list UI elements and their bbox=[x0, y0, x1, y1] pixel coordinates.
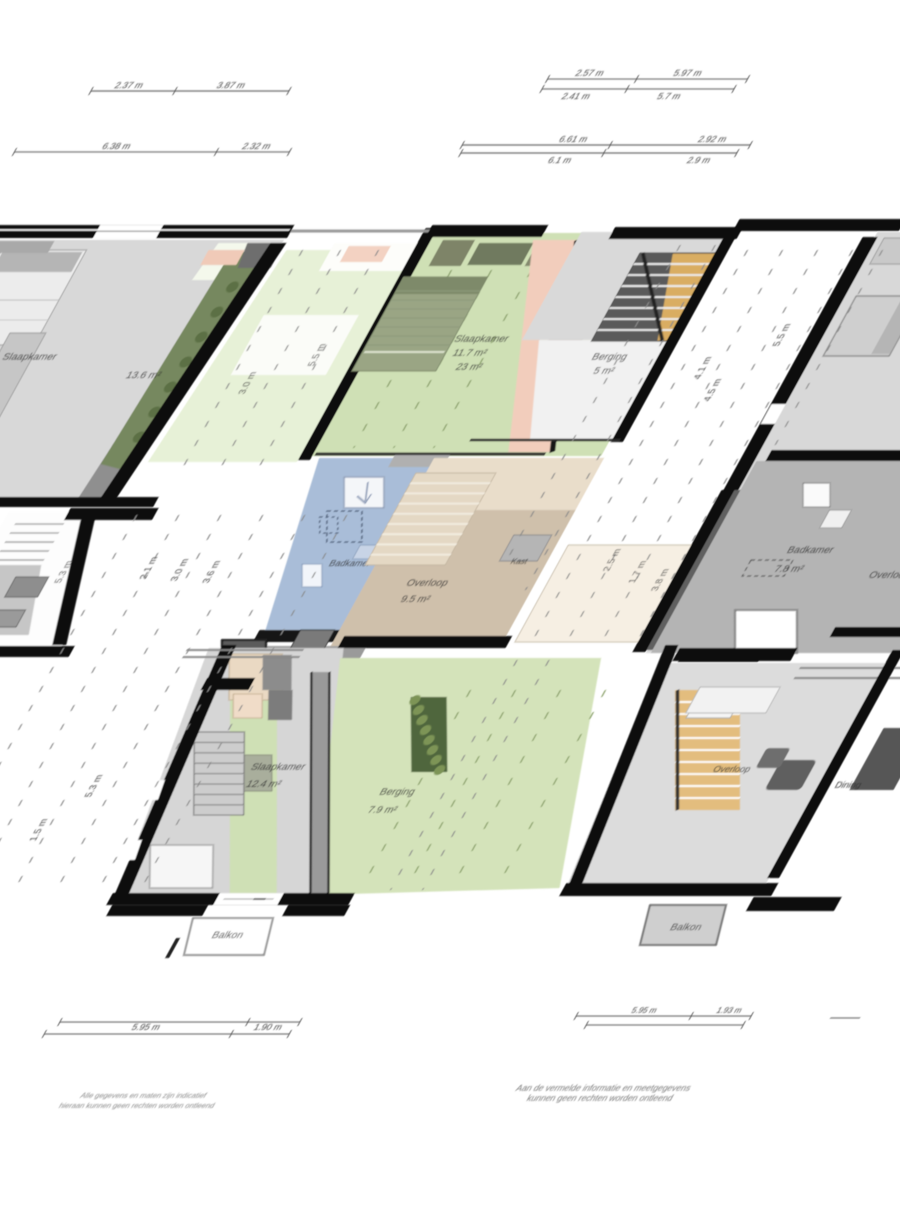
svg-text:2.41 m: 2.41 m bbox=[559, 92, 592, 102]
svg-text:Badkamer: Badkamer bbox=[785, 545, 837, 556]
svg-text:Aan de vermelde informatie en: Aan de vermelde informatie en meetgegeve… bbox=[514, 1084, 693, 1093]
svg-text:Slaapkamer: Slaapkamer bbox=[452, 334, 512, 345]
svg-text:2.57 m: 2.57 m bbox=[573, 69, 606, 79]
svg-text:Slaapkamer: Slaapkamer bbox=[0, 352, 60, 363]
svg-text:Alle gegevens en maten zijn in: Alle gegevens en maten zijn indicatief bbox=[78, 1091, 209, 1099]
svg-text:Berging: Berging bbox=[377, 787, 418, 798]
svg-text:6.61 m: 6.61 m bbox=[557, 135, 590, 145]
svg-text:5.95 m: 5.95 m bbox=[630, 1006, 660, 1015]
svg-text:Overloop: Overloop bbox=[404, 578, 451, 589]
svg-text:12.4 m²: 12.4 m² bbox=[244, 779, 284, 790]
svg-text:kunnen geen rechten worden ont: kunnen geen rechten worden ontleend bbox=[525, 1094, 675, 1103]
svg-text:11.7 m²: 11.7 m² bbox=[450, 348, 490, 359]
svg-text:2.92 m: 2.92 m bbox=[696, 135, 729, 145]
svg-text:3.87 m: 3.87 m bbox=[214, 81, 247, 91]
svg-text:hieraan kunnen geen rechten wo: hieraan kunnen geen rechten worden ontle… bbox=[57, 1101, 216, 1109]
svg-text:Berging: Berging bbox=[589, 352, 630, 363]
svg-text:Overloop: Overloop bbox=[711, 765, 753, 775]
svg-text:2.37 m: 2.37 m bbox=[112, 81, 145, 91]
svg-text:5.97 m: 5.97 m bbox=[671, 69, 704, 79]
svg-text:1.90 m: 1.90 m bbox=[251, 1023, 284, 1033]
svg-text:Slaapkamer: Slaapkamer bbox=[248, 762, 308, 773]
svg-text:6.38 m: 6.38 m bbox=[100, 142, 133, 152]
svg-text:5.95 m: 5.95 m bbox=[129, 1023, 162, 1033]
svg-text:2.32 m: 2.32 m bbox=[240, 142, 273, 152]
svg-text:1.93 m: 1.93 m bbox=[715, 1006, 745, 1015]
svg-text:Balkon: Balkon bbox=[668, 922, 705, 933]
svg-text:Overloop: Overloop bbox=[866, 570, 900, 581]
svg-text:Balkon: Balkon bbox=[209, 930, 246, 941]
svg-text:13.6 m²: 13.6 m² bbox=[124, 370, 164, 381]
